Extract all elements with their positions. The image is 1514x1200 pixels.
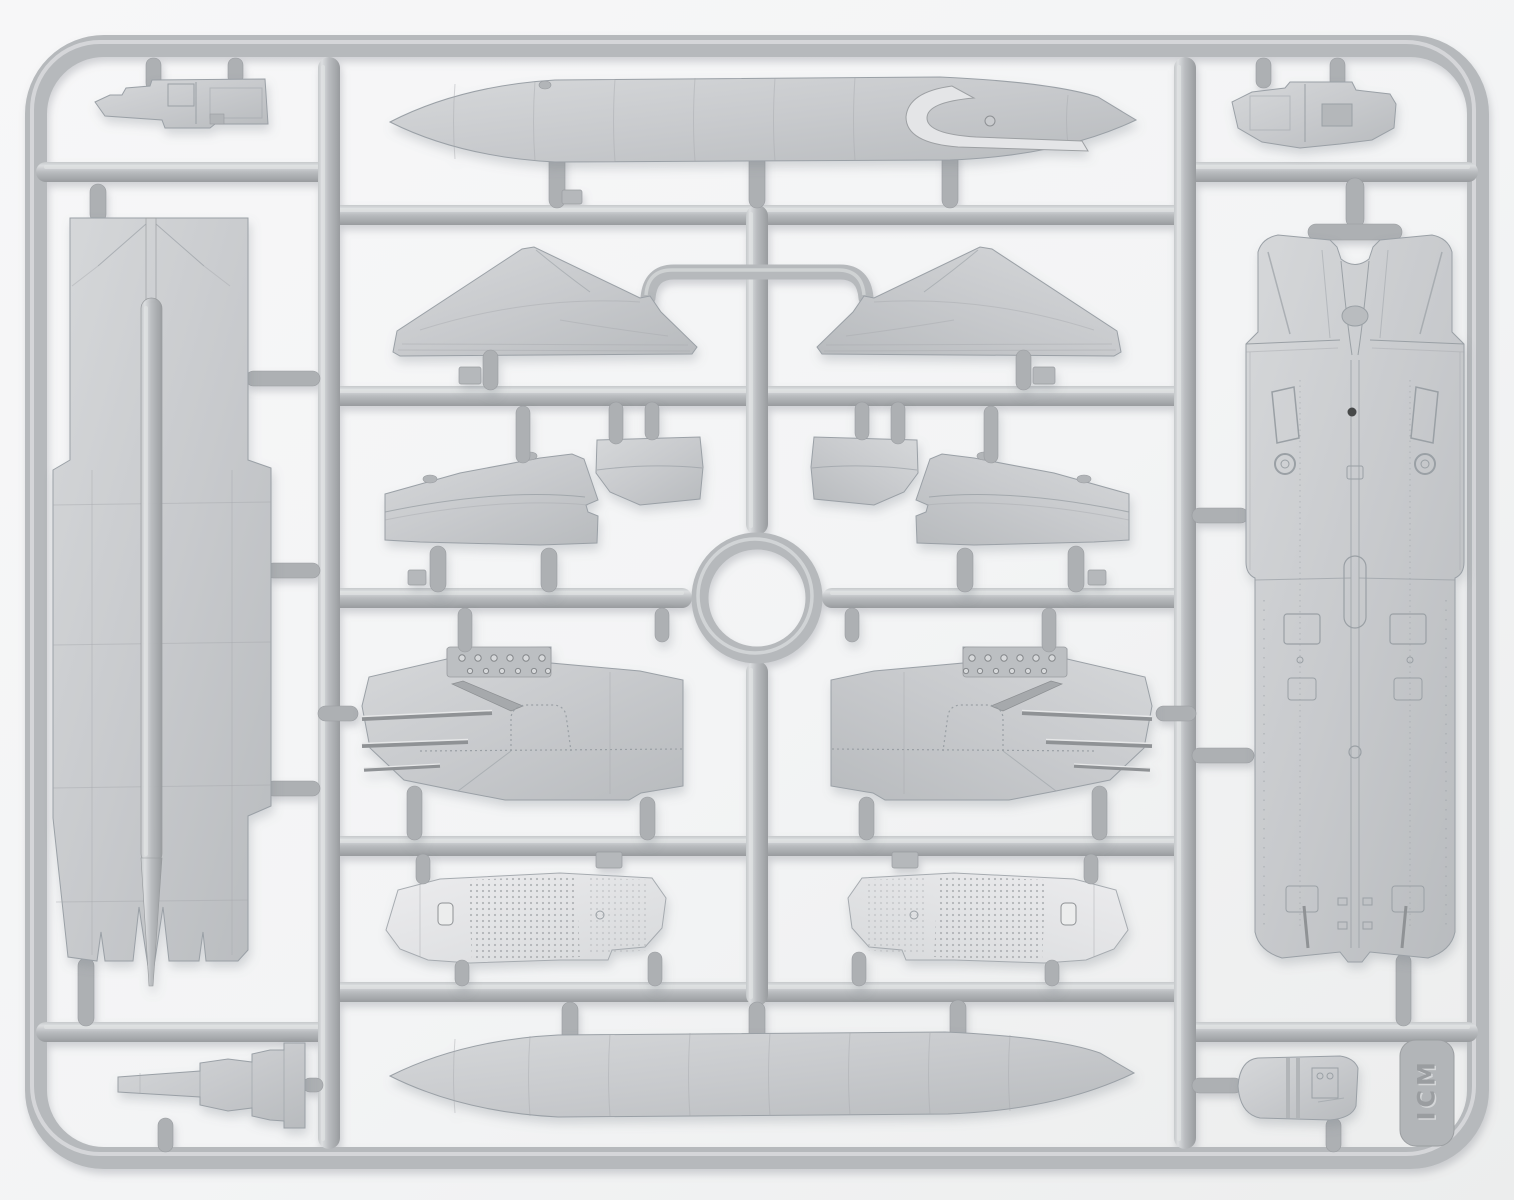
- sprue-photo-svg: Grey injection-moulded aircraft model ki…: [0, 0, 1514, 1200]
- part-fuselage-underside: Fuselage underside with intake trunks: [1246, 235, 1464, 962]
- fuselage-hole: [1348, 408, 1357, 417]
- part-top-fuel-tank: External fuel tank half — upper, with ta…: [390, 77, 1136, 162]
- part-bottom-fuel-tank: External fuel tank half — lower: [390, 1032, 1134, 1117]
- sprue-photo: Grey injection-moulded aircraft model ki…: [0, 0, 1514, 1200]
- sprue-tag: Embossed manufacturer tag ICM ICM: [1400, 1040, 1454, 1146]
- pod-strap: [1286, 1058, 1290, 1118]
- icm-logo: ICM: [1413, 1058, 1441, 1120]
- part-equipment-block-top-right: Equipment block — top-right corner: [1232, 82, 1396, 148]
- pod-strap: [1296, 1058, 1300, 1118]
- mesh-texture-sparse: [586, 877, 650, 956]
- part-wing-panel: One-piece wing panel with flap slots: [53, 218, 271, 986]
- wing-center-runner-rod: [141, 298, 162, 986]
- part-pod-bottom-right: Rounded pod hatch — bottom-right corner: [1238, 1056, 1358, 1120]
- panel-slot: [438, 903, 453, 925]
- mesh-texture-dense: [468, 875, 580, 961]
